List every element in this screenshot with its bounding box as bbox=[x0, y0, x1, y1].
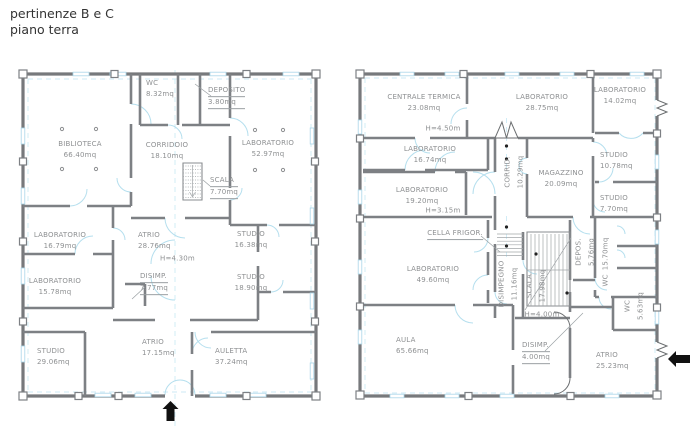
room-label-depos: DEPOS.5.76mq bbox=[572, 238, 597, 266]
room-label-corridoio: CORRIDOIO18.10mq bbox=[146, 140, 188, 162]
right-dark-door-arcs bbox=[554, 312, 570, 394]
room-label-scala-1798: SCALA17.98mq bbox=[523, 270, 548, 303]
room-label-laboratorio-1920: LABORATORIO19.20mq bbox=[396, 185, 448, 207]
room-label-laboratorio-52: LABORATORIO52.97mq bbox=[242, 138, 294, 160]
room-label-disimpegno: DISIMPEGNO11.16mq bbox=[495, 261, 520, 308]
room-label-wc: WC8.32mq bbox=[146, 78, 174, 100]
room-label-studio-770: STUDIO7.70mq bbox=[600, 193, 628, 215]
room-label-disimp-777: DISIMP.7.77mq bbox=[140, 271, 168, 295]
left-entrance-arrow-up-icon bbox=[163, 401, 179, 421]
room-label-wc-563: WC5.63mq bbox=[621, 292, 646, 320]
height-label-scala: H=4.00m bbox=[525, 310, 560, 321]
room-label-studio-1078: STUDIO10.78mq bbox=[600, 150, 633, 172]
room-label-deposito: DEPOSITO3.80mq bbox=[208, 85, 245, 109]
room-label-laboratorio-1402: LABORATORIO14.02mq bbox=[594, 85, 646, 107]
page-title: pertinenze B e C piano terra bbox=[10, 6, 114, 39]
right-entrance-arrow-left-icon bbox=[668, 351, 690, 367]
room-label-atrio-1715: ATRIO17.15mq bbox=[142, 337, 175, 359]
room-label-atrio-2876: ATRIO28.76mq bbox=[138, 230, 171, 252]
height-label-centrale-termica: H=4.50m bbox=[426, 124, 461, 135]
room-label-studio-1638: STUDIO16.38mq bbox=[235, 229, 268, 251]
room-label-aula: AULA65.66mq bbox=[396, 335, 429, 357]
room-label-corrid: CORRID.10.29mq bbox=[501, 156, 526, 189]
room-label-auletta: AULETTA37.24mq bbox=[215, 346, 248, 368]
floorplan-canvas: pertinenze B e C piano terra bbox=[0, 0, 700, 434]
room-label-wc-1570: WC15.70mq bbox=[600, 238, 613, 287]
room-label-scala: SCALA7.70mq bbox=[210, 175, 238, 199]
room-label-biblioteca: BIBLIOTECA66.40mq bbox=[58, 139, 102, 161]
right-corridor-steps bbox=[497, 234, 523, 256]
room-label-atrio-2523: ATRIO25.23mq bbox=[596, 350, 629, 372]
room-label-laboratorio-1679: LABORATORIO16.79mq bbox=[34, 230, 86, 252]
room-label-magazzino: MAGAZZINO20.09mq bbox=[538, 168, 583, 190]
room-label-laboratorio-2875: LABORATORIO28.75mq bbox=[516, 92, 568, 114]
room-label-disimp-400: DISIMP.4.00mq bbox=[522, 340, 550, 364]
height-label-atrio: H=4.30m bbox=[160, 254, 195, 265]
room-label-laboratorio-1578: LABORATORIO15.78mq bbox=[29, 276, 81, 298]
height-label-laboratorio-1920: H=3.15m bbox=[426, 206, 461, 217]
title-line-1: pertinenze B e C bbox=[10, 6, 114, 22]
room-label-centrale-termica: CENTRALE TERMICA23.08mq bbox=[387, 92, 460, 114]
room-label-cella-frigor: CELLA FRIGOR. bbox=[427, 228, 483, 240]
room-label-laboratorio-1674: LABORATORIO16.74mq bbox=[404, 144, 456, 166]
room-label-laboratorio-4960: LABORATORIO49.60mq bbox=[407, 264, 459, 286]
title-line-2: piano terra bbox=[10, 22, 114, 38]
room-label-studio-1890: STUDIO18.90mq bbox=[235, 272, 268, 294]
room-label-studio-2906: STUDIO29.06mq bbox=[37, 346, 70, 368]
